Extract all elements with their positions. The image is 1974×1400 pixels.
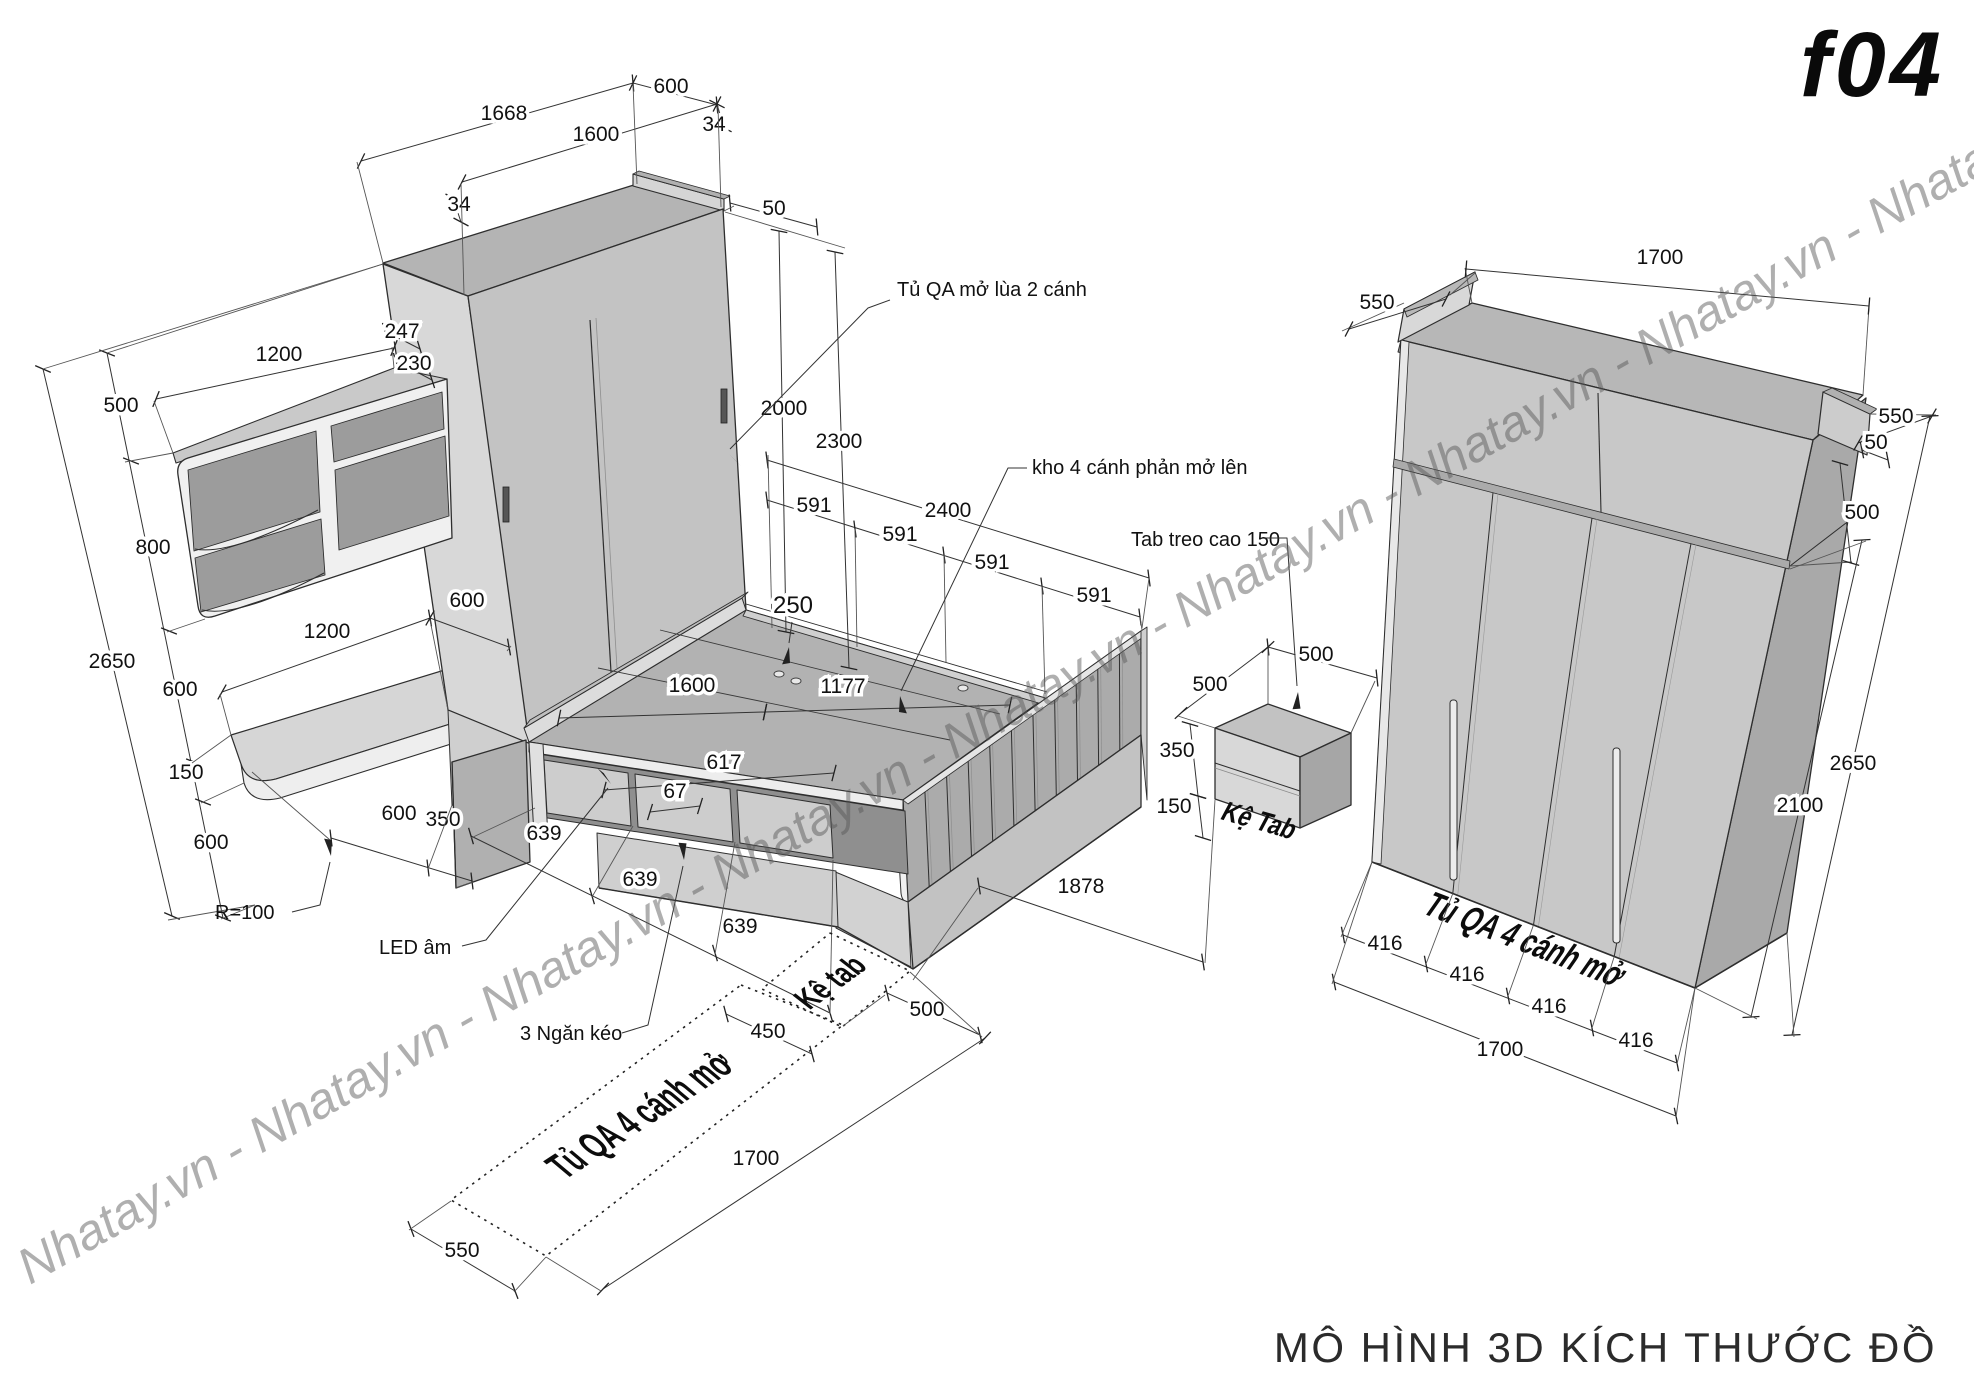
- svg-text:150: 150: [168, 761, 203, 784]
- svg-text:250: 250: [773, 592, 813, 619]
- svg-text:Tủ QA mở lùa 2 cánh: Tủ QA mở lùa 2 cánh: [897, 279, 1087, 301]
- svg-text:600: 600: [449, 589, 484, 612]
- svg-text:600: 600: [193, 831, 228, 854]
- svg-text:1177: 1177: [820, 675, 865, 698]
- svg-text:416: 416: [1618, 1029, 1653, 1052]
- svg-text:639: 639: [722, 915, 757, 938]
- svg-text:kho 4 cánh phản mở lên: kho 4 cánh phản mở lên: [1032, 457, 1247, 479]
- svg-text:50: 50: [762, 197, 785, 220]
- svg-text:591: 591: [1076, 584, 1111, 607]
- svg-text:247: 247: [384, 320, 419, 343]
- svg-text:800: 800: [135, 536, 170, 559]
- svg-text:591: 591: [796, 494, 831, 517]
- svg-text:2650: 2650: [1830, 752, 1877, 775]
- svg-text:639: 639: [526, 822, 561, 845]
- svg-text:1878: 1878: [1058, 875, 1105, 898]
- svg-text:350: 350: [1159, 739, 1194, 762]
- svg-text:2300: 2300: [816, 430, 863, 453]
- svg-text:2400: 2400: [925, 499, 972, 522]
- svg-text:1700: 1700: [1637, 246, 1684, 269]
- svg-text:591: 591: [974, 551, 1009, 574]
- svg-text:500: 500: [1844, 501, 1879, 524]
- svg-text:500: 500: [1192, 673, 1227, 696]
- svg-text:1700: 1700: [1477, 1038, 1524, 1061]
- svg-text:500: 500: [1298, 643, 1333, 666]
- svg-text:1200: 1200: [304, 620, 351, 643]
- svg-text:f04: f04: [1800, 14, 1945, 116]
- svg-text:150: 150: [1156, 795, 1191, 818]
- svg-text:1600: 1600: [669, 674, 716, 697]
- svg-text:R=100: R=100: [215, 902, 275, 924]
- svg-text:34: 34: [447, 193, 471, 216]
- svg-text:600: 600: [381, 802, 416, 825]
- svg-text:416: 416: [1449, 963, 1484, 986]
- svg-text:2000: 2000: [761, 397, 808, 420]
- svg-text:1600: 1600: [573, 123, 620, 146]
- svg-text:67: 67: [663, 780, 686, 803]
- svg-text:600: 600: [653, 75, 688, 98]
- svg-text:MÔ HÌNH 3D KÍCH THƯỚC ĐỒ: MÔ HÌNH 3D KÍCH THƯỚC ĐỒ: [1274, 1323, 1937, 1371]
- svg-text:600: 600: [162, 678, 197, 701]
- svg-text:34: 34: [702, 113, 726, 136]
- svg-text:2650: 2650: [89, 650, 136, 673]
- svg-text:550: 550: [1878, 405, 1913, 428]
- svg-text:550: 550: [1359, 291, 1394, 314]
- svg-text:50: 50: [1864, 431, 1887, 454]
- svg-text:1200: 1200: [256, 343, 303, 366]
- svg-text:450: 450: [750, 1020, 785, 1043]
- svg-text:1668: 1668: [481, 102, 528, 125]
- svg-text:617: 617: [706, 751, 741, 774]
- svg-text:416: 416: [1531, 995, 1566, 1018]
- svg-text:230: 230: [396, 352, 431, 375]
- svg-text:550: 550: [444, 1239, 479, 1262]
- svg-text:LED âm: LED âm: [379, 937, 451, 959]
- svg-text:500: 500: [103, 394, 138, 417]
- svg-text:416: 416: [1367, 932, 1402, 955]
- svg-text:591: 591: [882, 523, 917, 546]
- svg-text:350: 350: [425, 808, 460, 831]
- svg-text:3 Ngăn kéo: 3 Ngăn kéo: [520, 1023, 622, 1045]
- svg-text:1700: 1700: [733, 1147, 780, 1170]
- svg-text:2100: 2100: [1777, 794, 1824, 817]
- svg-text:500: 500: [909, 998, 944, 1021]
